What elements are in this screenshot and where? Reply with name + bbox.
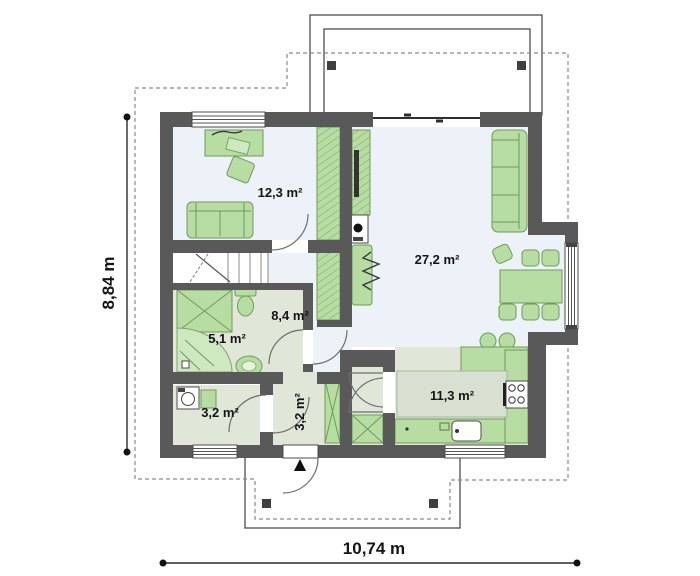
wall-segment — [237, 445, 283, 458]
wall-segment — [317, 372, 340, 384]
media-shelf — [352, 130, 370, 215]
window-bay — [565, 243, 578, 329]
label-hall: 8,4 m² — [271, 308, 309, 323]
window-utility — [193, 445, 237, 458]
wall-segment — [173, 283, 313, 290]
wall-segment — [318, 445, 445, 458]
wall-segment — [160, 127, 173, 458]
wall-segment — [340, 350, 395, 367]
terrace-post-left — [327, 61, 336, 70]
wall-segment — [260, 432, 273, 445]
wall-segment — [308, 240, 340, 253]
terrace-post-right — [517, 61, 526, 70]
porch-post-right — [429, 499, 438, 508]
label-kitchen: 11,3 m² — [430, 388, 475, 403]
hall-wardrobe — [317, 248, 340, 320]
wall-segment — [173, 372, 283, 384]
wall-segment — [528, 332, 578, 345]
label-bedroom: 12,3 m² — [258, 185, 303, 200]
floor-plan-drawing: 12,3 m² 27,2 m² 8,4 m² 5,1 m² 3,2 m² 3,2… — [0, 0, 700, 576]
cooktop — [503, 381, 528, 408]
floor-plan-page: 12,3 m² 27,2 m² 8,4 m² 5,1 m² 3,2 m² 3,2… — [0, 0, 700, 576]
wall-segment — [340, 127, 352, 327]
vestibule-wardrobe — [325, 380, 340, 443]
wall-segment — [383, 367, 395, 372]
porch-post-left — [262, 499, 271, 508]
wall-segment — [173, 240, 272, 253]
washing-machine — [177, 387, 199, 409]
sofa-small — [187, 202, 253, 238]
dining-chair — [542, 304, 559, 320]
dimension-bottom: 10,74 m — [160, 539, 581, 567]
label-utility: 3,2 m² — [201, 405, 239, 420]
dimension-left: 8,84 m — [99, 114, 131, 456]
dining-set — [491, 243, 562, 320]
wall-segment — [383, 413, 395, 445]
dining-table — [500, 270, 562, 303]
wall-segment — [528, 345, 546, 445]
floor-stairs — [173, 253, 268, 283]
dimension-height-label: 8,84 m — [99, 257, 118, 310]
label-living: 27,2 m² — [415, 252, 460, 267]
sofa-large — [492, 130, 527, 232]
entrance-porch — [245, 450, 460, 528]
wall-segment — [160, 445, 193, 458]
window-bedroom — [192, 112, 265, 127]
wall-segment — [265, 112, 373, 127]
wall-segment — [528, 127, 542, 222]
label-vestibule: 3,2 m² — [292, 393, 307, 431]
wall-segment — [528, 222, 578, 235]
sliding-terrace-door — [373, 112, 480, 127]
dining-chair — [522, 250, 539, 266]
dining-chair — [499, 304, 516, 320]
tv — [354, 150, 359, 197]
wardrobe-bedroom — [317, 127, 340, 240]
label-bathroom: 5,1 m² — [208, 331, 246, 346]
dimension-width-label: 10,74 m — [343, 539, 405, 558]
wall-segment — [505, 445, 546, 458]
lobby-wardrobe — [352, 415, 383, 443]
counter-bottom — [395, 419, 505, 443]
wall-segment — [317, 320, 340, 327]
terrace — [310, 15, 542, 115]
wall-segment — [160, 112, 192, 127]
dining-chair — [542, 250, 559, 266]
window-kitchen — [445, 445, 505, 458]
wall-segment — [565, 235, 578, 243]
wall-segment — [480, 112, 542, 127]
dining-chair — [522, 304, 539, 320]
wall-segment — [303, 364, 313, 372]
bathroom-cabinet — [177, 290, 232, 332]
wall-segment — [260, 384, 273, 395]
